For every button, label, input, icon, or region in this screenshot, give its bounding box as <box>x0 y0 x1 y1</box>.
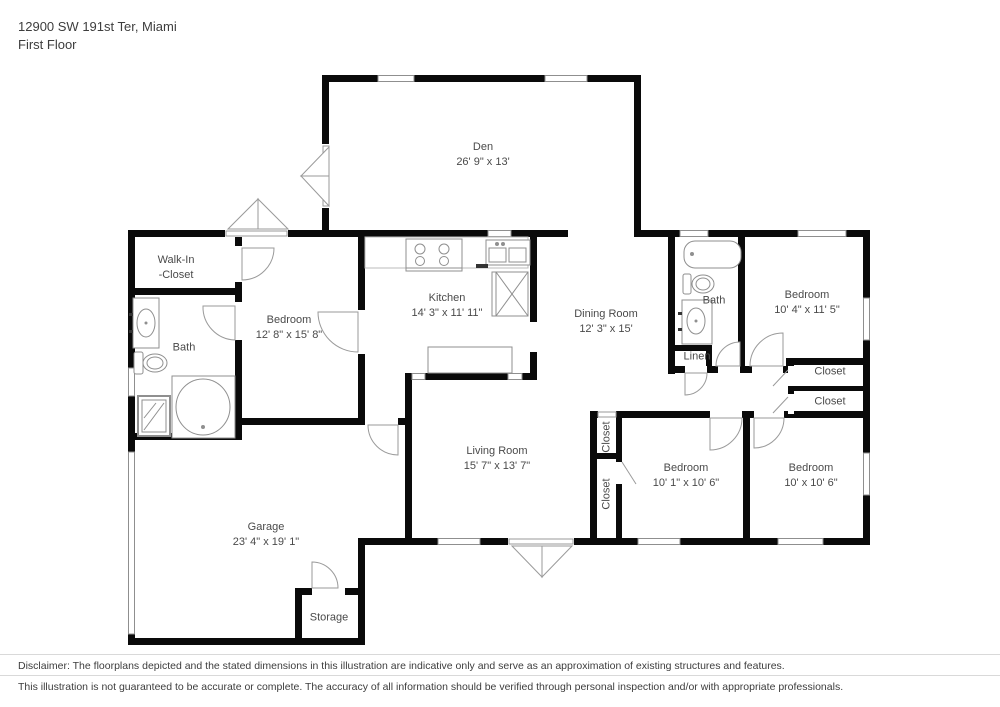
kitchen-sink-icon <box>486 240 530 265</box>
window-icon <box>680 231 708 237</box>
disclaimer-text-2: This illustration is not guaranteed to b… <box>18 681 843 693</box>
disclaimer-text-1: Disclaimer: The floorplans depicted and … <box>18 660 785 672</box>
vanity-sink-icon <box>129 298 159 348</box>
room-dims: 12' 3" x 15' <box>574 322 638 337</box>
bathtub-icon <box>172 376 235 438</box>
window-icon <box>778 539 823 545</box>
room-name: Closet <box>814 395 845 410</box>
room-label-bedroom-left: Bedroom 12' 8" x 15' 8" <box>256 313 322 343</box>
dishwasher-mark <box>476 264 488 268</box>
window-icon <box>438 539 480 545</box>
room-label-den: Den 26' 9" x 13' <box>456 140 509 170</box>
room-name: Living Room <box>464 444 530 459</box>
room-label-bedroom-top-right: Bedroom 10' 4" x 11' 5" <box>774 288 840 318</box>
room-label-closet-right-1: Closet <box>814 365 845 380</box>
room-label-living-room: Living Room 15' 7" x 13' 7" <box>464 444 530 474</box>
room-dims: 10' 1" x 10' 6" <box>653 476 719 491</box>
room-name: Closet <box>814 365 845 380</box>
shower-icon <box>138 396 170 436</box>
room-name: Garage <box>233 520 299 535</box>
window-icon <box>864 453 870 495</box>
floorplan-page: { "header": { "address": "12900 SW 191st… <box>0 0 1000 707</box>
room-name: Den <box>456 140 509 155</box>
room-name: Bedroom <box>653 461 719 476</box>
room-dims: 14' 3" x 11' 11" <box>412 306 483 321</box>
room-name: Storage <box>310 611 349 626</box>
room-dims: 12' 8" x 15' 8" <box>256 328 322 343</box>
room-label-bedroom-bottom-right: Bedroom 10' x 10' 6" <box>784 461 837 491</box>
room-label-closet-vert-1: Closet <box>600 421 615 452</box>
room-label-bath-right: Bath <box>703 294 726 309</box>
bedroom-mid-door-icon <box>710 418 742 450</box>
window-icon <box>638 539 680 545</box>
disclaimer-line-2: This illustration is not guaranteed to b… <box>0 675 1000 693</box>
room-label-bedroom-mid: Bedroom 10' 1" x 10' 6" <box>653 461 719 491</box>
linen-door-icon <box>685 373 707 395</box>
room-dims: 15' 7" x 13' 7" <box>464 459 530 474</box>
floorplan-drawing <box>0 0 1000 707</box>
toilet-icon <box>134 352 167 374</box>
room-name: Bath <box>173 341 196 356</box>
window-icon <box>378 76 414 82</box>
den-double-door-icon <box>301 146 329 206</box>
stove-icon <box>406 239 462 271</box>
closet-r2-door-icon <box>773 397 788 413</box>
window-icon <box>798 231 846 237</box>
window-icon <box>864 298 870 340</box>
room-label-storage: Storage <box>310 611 349 626</box>
room-name: -Closet <box>158 268 195 283</box>
room-label-closet-right-2: Closet <box>814 395 845 410</box>
window-icon <box>488 231 511 237</box>
room-label-bath-left: Bath <box>173 341 196 356</box>
closet-a-slider-icon <box>598 412 616 417</box>
walkin-closet-door-icon <box>242 248 274 280</box>
window-icon <box>412 374 425 380</box>
room-dims: 10' x 10' 6" <box>784 476 837 491</box>
bedroom-top-right-door-icon <box>750 333 783 366</box>
room-name: Walk-In <box>158 253 195 268</box>
kitchen-island <box>428 347 512 373</box>
room-name: Linen <box>684 350 711 365</box>
fixtures <box>129 237 741 438</box>
room-dims: 10' 4" x 11' 5" <box>774 303 840 318</box>
room-name: Bedroom <box>784 461 837 476</box>
room-name: Closet <box>600 478 615 509</box>
room-label-garage: Garage 23' 4" x 19' 1" <box>233 520 299 550</box>
pantry-closet-icon <box>492 272 528 316</box>
bath-left-door-icon <box>203 306 235 340</box>
garage-door-icon <box>368 425 398 455</box>
window-icon <box>508 374 522 380</box>
bathtub-icon <box>684 241 741 268</box>
room-dims: 26' 9" x 13' <box>456 155 509 170</box>
disclaimer-line-1: Disclaimer: The floorplans depicted and … <box>0 654 1000 672</box>
room-label-walkin-closet: Walk-In -Closet <box>158 253 195 283</box>
room-name: Dining Room <box>574 307 638 322</box>
bath-right-door-icon <box>716 342 740 366</box>
room-label-closet-vert-2: Closet <box>600 478 615 509</box>
window-icon <box>545 76 587 82</box>
storage-door-icon <box>312 562 338 588</box>
room-dims: 23' 4" x 19' 1" <box>233 535 299 550</box>
toilet-icon <box>683 274 714 294</box>
bedroom-left-door-icon <box>318 312 358 352</box>
room-name: Bath <box>703 294 726 309</box>
room-name: Kitchen <box>412 291 483 306</box>
room-name: Bedroom <box>256 313 322 328</box>
room-name: Bedroom <box>774 288 840 303</box>
window-icon <box>129 452 135 634</box>
closet-b-door-icon <box>622 462 636 484</box>
room-name: Closet <box>600 421 615 452</box>
room-label-dining-room: Dining Room 12' 3" x 15' <box>574 307 638 337</box>
room-label-linen: Linen <box>684 350 711 365</box>
room-label-kitchen: Kitchen 14' 3" x 11' 11" <box>412 291 483 321</box>
bedroom-bottom-right-door-icon <box>754 418 784 448</box>
